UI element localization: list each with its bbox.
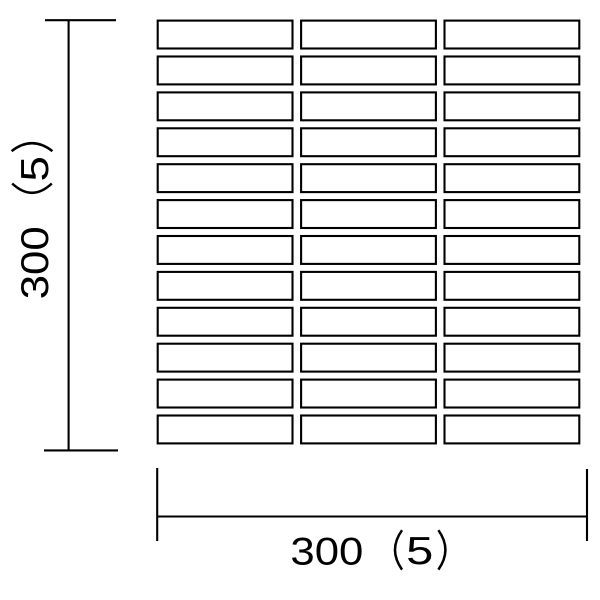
- svg-text:300: 300: [290, 531, 363, 574]
- svg-text:300: 300: [14, 226, 57, 299]
- svg-text:5: 5: [14, 156, 57, 182]
- svg-text:5: 5: [406, 530, 433, 573]
